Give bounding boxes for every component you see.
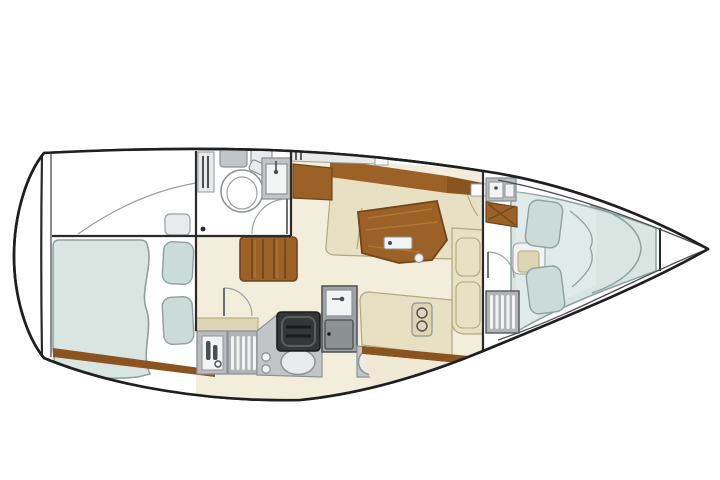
- louver-slat: [253, 336, 256, 370]
- head-faucet-dot: [274, 170, 278, 174]
- louver-slat: [237, 336, 240, 370]
- galley-shelf-strip: [196, 318, 258, 332]
- fridge-handle: [327, 332, 331, 336]
- v-berth-pillow-top: [524, 199, 563, 249]
- louver-slat: [490, 295, 493, 329]
- companionway-steps: [240, 237, 297, 281]
- stove-knob: [262, 353, 270, 361]
- vanity-faucet-dot: [494, 186, 498, 190]
- head-locker-box: [220, 149, 247, 167]
- companionway: [240, 237, 297, 281]
- yacht-floor-plan-canvas: [0, 0, 720, 480]
- basin-faucet-dot: [340, 297, 345, 302]
- head-compartment: [196, 149, 291, 235]
- louver-slat: [507, 295, 510, 329]
- bottle-locker-inner: [202, 336, 223, 370]
- fridge-top-basin: [326, 290, 352, 316]
- salon-table: [358, 201, 447, 263]
- head-shelf-rack: [198, 152, 214, 192]
- vanity-tray: [505, 184, 514, 197]
- louver-slat: [248, 336, 251, 370]
- louver-slat: [496, 295, 499, 329]
- forward-seat-chest: [452, 228, 483, 334]
- table-cup-holder: [415, 254, 424, 263]
- galley-oval-sink: [281, 350, 315, 375]
- aft-berth-pillow-top: [162, 241, 194, 285]
- v-berth-pillow-bottom: [525, 265, 565, 315]
- yacht-floor-plan: [0, 0, 720, 480]
- louver-slat: [501, 295, 504, 329]
- hanging-locker-wood: [293, 164, 332, 200]
- table-inset-dot: [388, 241, 392, 245]
- bottle-glyph: [213, 345, 218, 360]
- starboard-settee: [360, 292, 452, 356]
- transom-line: [41, 154, 42, 357]
- head-door-stop: [201, 227, 206, 232]
- aft-berth-pillow-bottom: [162, 296, 194, 345]
- louver-slat: [242, 336, 245, 370]
- louver-slat: [512, 295, 515, 329]
- bottle-glyph: [206, 341, 211, 360]
- vanity-basin: [489, 182, 503, 198]
- louver-slat: [231, 336, 234, 370]
- stove-knob: [262, 365, 270, 373]
- aft-cabin-step: [165, 214, 190, 235]
